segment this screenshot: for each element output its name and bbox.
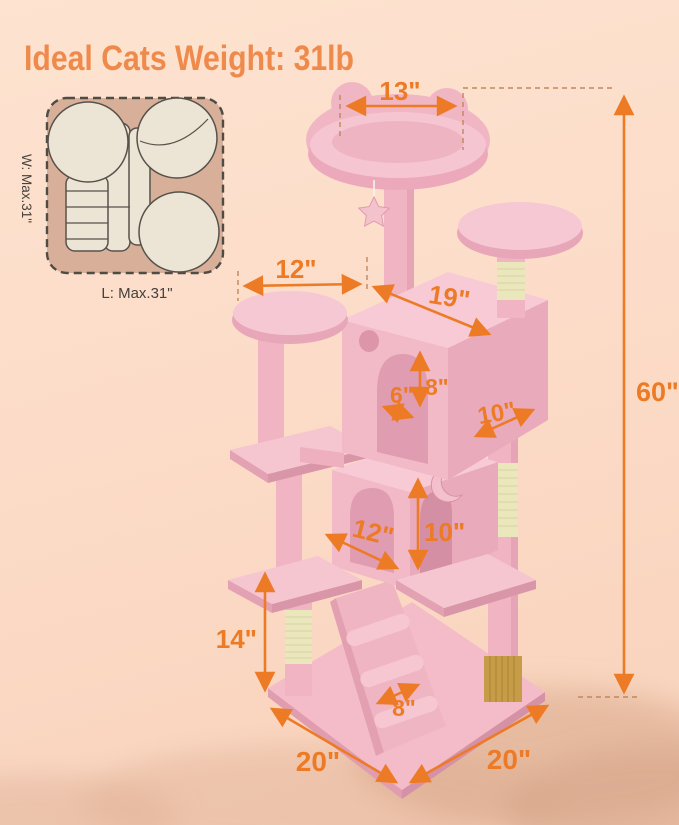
- peek-hole: [359, 330, 379, 352]
- dim-left-platform-width-label: 12": [275, 254, 316, 284]
- footprint-length-label: L: Max.31": [101, 285, 172, 302]
- footprint-platform-circle-2: [137, 98, 217, 178]
- right-round-platform: [457, 202, 583, 259]
- left-round-platform: [232, 291, 348, 344]
- dim-left-section-height-label: 14": [216, 624, 257, 654]
- dim-lower-condo-height-label: 10": [424, 517, 465, 547]
- dim-upper-door-height-label: 8": [425, 374, 449, 400]
- dim-total-height: 60": [624, 97, 679, 692]
- footprint-width-label: W: Max.31": [19, 154, 34, 223]
- footprint-top-view: [47, 98, 223, 273]
- dim-upper-door-width-label: 6": [390, 382, 414, 408]
- footprint-platform-circle-1: [48, 102, 128, 182]
- diagram-canvas: Ideal Cats Weight: 31lb W: Max.31" L: Ma…: [0, 0, 679, 825]
- dim-left-platform-width: 12": [245, 254, 360, 286]
- dim-condo-top-length-label: 19": [427, 279, 472, 315]
- bottom-left-post: [285, 596, 312, 696]
- page-title: Ideal Cats Weight: 31lb: [24, 39, 354, 78]
- dim-base-front-left-label: 20": [296, 746, 340, 777]
- left-upper-post: [258, 332, 284, 444]
- cat-tree-dimension-diagram: Ideal Cats Weight: 31lb W: Max.31" L: Ma…: [0, 0, 679, 825]
- right-upper-post: [497, 250, 525, 318]
- dim-ramp-width-label: 8": [392, 695, 416, 721]
- dim-top-perch-width-label: 13": [379, 76, 420, 106]
- dim-base-front-right-label: 20": [487, 744, 531, 775]
- footprint-platform-circle-3: [139, 192, 219, 272]
- dim-total-height-label: 60": [636, 377, 679, 407]
